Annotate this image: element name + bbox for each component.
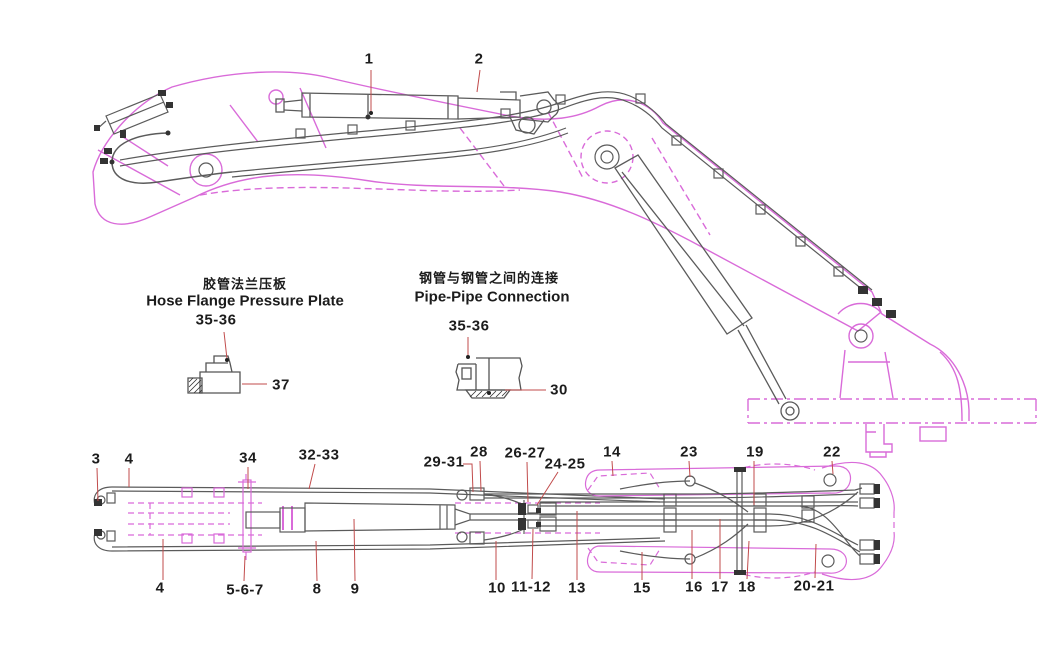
arm-cylinder-drawing xyxy=(276,92,559,134)
callout-17: 17 xyxy=(711,579,729,596)
callout-10: 10 xyxy=(488,580,506,597)
detail1-callout-37: 37 xyxy=(272,377,290,394)
callout-24-25: 24-25 xyxy=(545,456,586,473)
callout-14: 14 xyxy=(603,444,621,461)
detail2-callout-35-36: 35-36 xyxy=(449,318,490,335)
detail2-callout-30: 30 xyxy=(550,382,568,399)
callout-16: 16 xyxy=(685,579,703,596)
small-cylinder-drawing xyxy=(94,90,173,138)
callout-18: 18 xyxy=(738,579,756,596)
detail2-title-zh: 钢管与钢管之间的连接 xyxy=(419,268,559,287)
detail1-title-zh: 胶管法兰压板 xyxy=(203,274,287,293)
leader-arrow-dots xyxy=(225,111,470,362)
callout-9: 9 xyxy=(351,581,360,598)
diagram-artwork xyxy=(0,0,1044,655)
detail1-title-en: Hose Flange Pressure Plate xyxy=(146,293,344,310)
arm-hidden-structure-drawing xyxy=(128,462,894,579)
callout-13: 13 xyxy=(568,580,586,597)
technical-diagram-page: 1 2 胶管法兰压板 Hose Flange Pressure Plate 35… xyxy=(0,0,1044,655)
callout-4-top: 4 xyxy=(125,451,134,468)
callout-8: 8 xyxy=(313,581,322,598)
callout-20-21: 20-21 xyxy=(794,578,835,595)
callout-26-27: 26-27 xyxy=(505,445,546,462)
callout-32-33: 32-33 xyxy=(299,447,340,464)
callout-2: 2 xyxy=(475,51,484,68)
callout-3: 3 xyxy=(92,451,101,468)
callout-11-12: 11-12 xyxy=(511,579,551,596)
detail-hose-flange-plate-drawing xyxy=(188,356,240,393)
callout-22: 22 xyxy=(823,444,841,461)
arm-cylinder-bottom-drawing xyxy=(246,503,540,532)
callout-15: 15 xyxy=(633,580,651,597)
callout-4-bottom: 4 xyxy=(156,580,165,597)
callout-28: 28 xyxy=(470,444,488,461)
callout-29-31: 29-31 xyxy=(424,454,465,471)
detail1-callout-35-36: 35-36 xyxy=(196,312,237,329)
callout-5-6-7: 5-6-7 xyxy=(226,582,264,599)
callout-1: 1 xyxy=(365,51,374,68)
callout-23: 23 xyxy=(680,444,698,461)
callout-19: 19 xyxy=(746,444,764,461)
callout-34: 34 xyxy=(239,450,257,467)
detail2-title-en: Pipe-Pipe Connection xyxy=(414,289,569,306)
boom-cylinder-drawing xyxy=(615,155,799,420)
arm-rails-drawing xyxy=(94,487,665,551)
detail-pipe-connection-drawing xyxy=(456,358,522,398)
machine-body-drawing xyxy=(748,304,1036,458)
